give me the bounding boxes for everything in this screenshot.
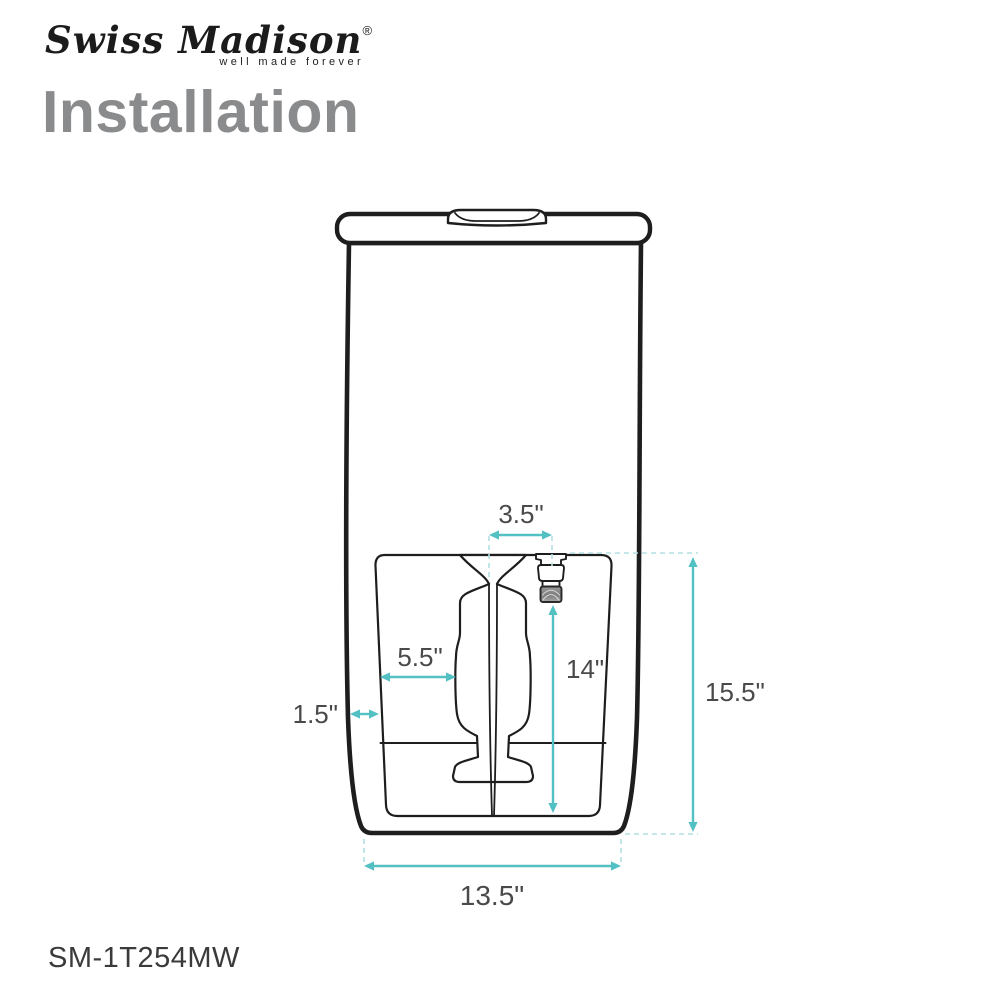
- valve-flange: [536, 554, 566, 565]
- installation-sheet: Swiss Madison® well made forever Install…: [0, 0, 1000, 1000]
- dimension-label-supply-height: 14": [566, 654, 604, 684]
- toilet-drawing: [337, 210, 650, 833]
- dimension-label-side-inset: 1.5": [293, 699, 338, 729]
- toilet-installation-diagram: 3.5" 5.5" 1.5" 14": [0, 0, 1000, 1000]
- water-supply-valve: [536, 554, 566, 602]
- dimension-label-base-width: 13.5": [460, 880, 524, 911]
- valve-nut: [538, 565, 564, 581]
- dimension-overall-height: [688, 557, 697, 832]
- dimension-label-trapway-offset: 5.5": [397, 642, 442, 672]
- flush-button: [448, 210, 546, 226]
- model-number: SM-1T254MW: [48, 942, 240, 975]
- dimension-base-width: [364, 861, 621, 870]
- dimension-label-overall-height: 15.5": [705, 677, 765, 707]
- dimension-label-supply-offset: 3.5": [498, 499, 543, 529]
